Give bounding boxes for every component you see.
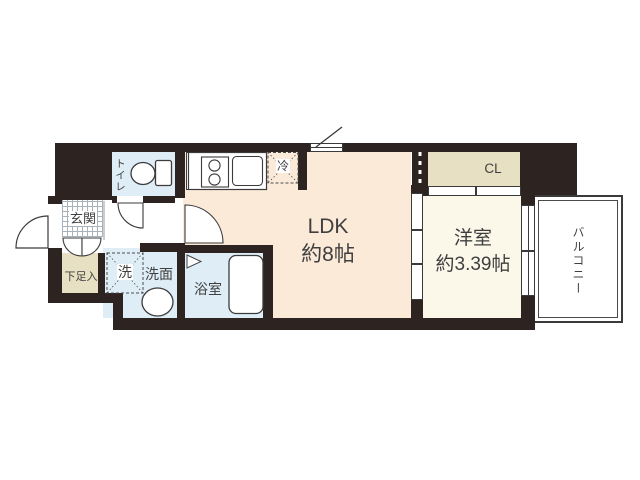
ldk-name: LDK bbox=[248, 213, 408, 241]
wall-block-topleft bbox=[55, 143, 112, 200]
label-toilet: トイレ bbox=[113, 155, 128, 195]
wall-toilet-bottom-b bbox=[143, 196, 175, 203]
label-ldk: LDK 約8帖 bbox=[248, 213, 408, 268]
window-kitchen-side bbox=[186, 152, 194, 190]
label-bathroom: 浴室 bbox=[188, 279, 228, 299]
wall-block-topright bbox=[520, 143, 577, 195]
label-entrance: 玄関 bbox=[64, 211, 102, 226]
ldk-area: 約8帖 bbox=[248, 241, 408, 269]
wall-kitchen-stub bbox=[298, 148, 307, 190]
wall-top bbox=[55, 143, 523, 152]
western-name: 洋室 bbox=[393, 226, 553, 252]
wall-toilet-bottom-a bbox=[112, 196, 117, 203]
wall-slide-cap-bottom bbox=[411, 300, 423, 330]
label-western-room: 洋室 約3.39帖 bbox=[393, 226, 553, 278]
wall-toilet-right bbox=[175, 150, 185, 198]
label-closet: CL bbox=[477, 161, 509, 176]
label-refrigerator: 冷 bbox=[271, 159, 295, 173]
western-area: 約3.39帖 bbox=[393, 252, 553, 278]
label-washroom: 洗面 bbox=[140, 264, 178, 284]
window-ldk-top bbox=[310, 143, 343, 152]
label-shoe-cabinet: 下足入 bbox=[60, 268, 102, 284]
toilet-door-arc-icon bbox=[118, 203, 143, 228]
entrance-door-arc-icon bbox=[16, 216, 48, 248]
label-washing-machine: 洗 bbox=[111, 264, 139, 280]
wall-bathroom-left bbox=[177, 253, 185, 330]
wall-slide-cap-top bbox=[411, 185, 423, 193]
wall-bottom-left bbox=[48, 293, 123, 303]
wall-partition-ldk-closet bbox=[412, 150, 428, 186]
floorplan: LDK 約8帖 洋室 約3.39帖 トイレ 玄関 下足入 洗 洗面 浴室 CL … bbox=[0, 0, 640, 480]
door-closet-sliding bbox=[428, 186, 521, 196]
label-balcony: バルコニー bbox=[570, 213, 587, 308]
wall-left-upper bbox=[48, 196, 62, 204]
